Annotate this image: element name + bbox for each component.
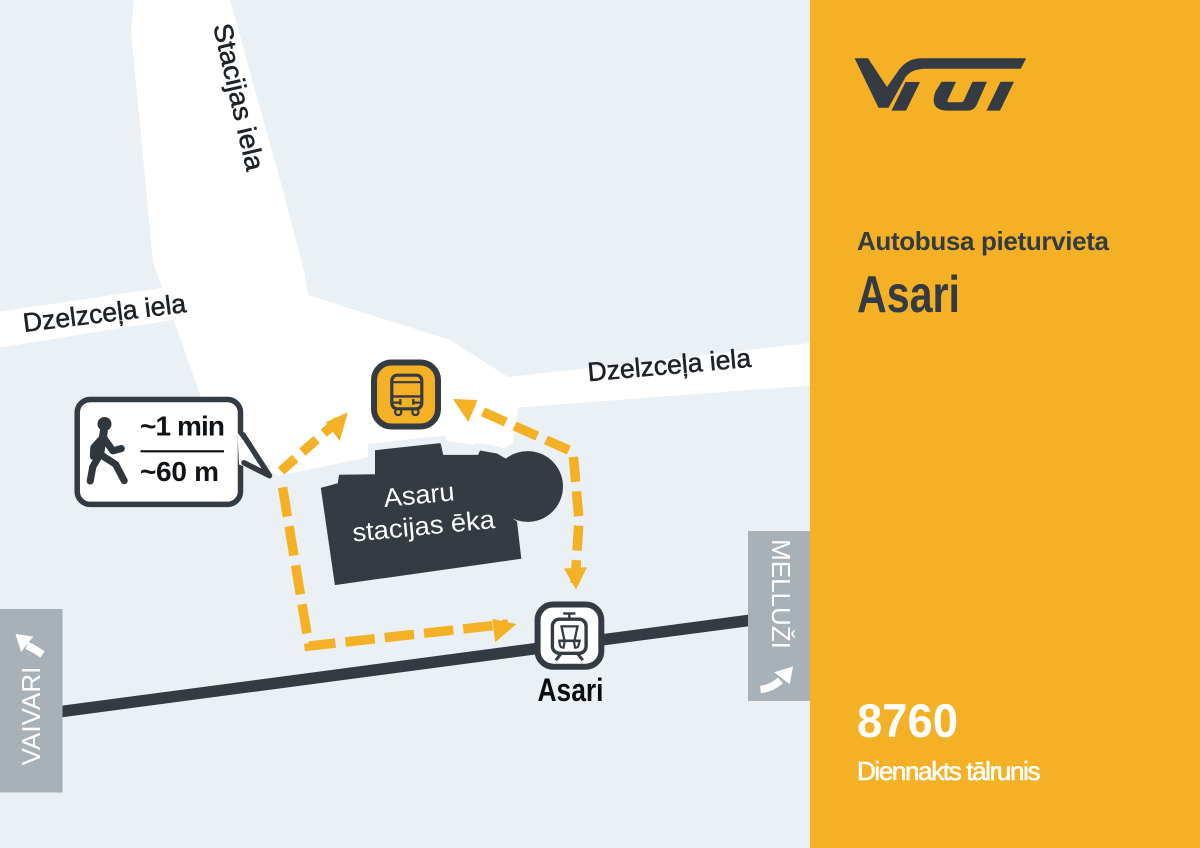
- svg-text:VAIVARI: VAIVARI: [16, 667, 46, 766]
- svg-text:~60 m: ~60 m: [140, 456, 219, 487]
- svg-text:MELLUŽI: MELLUŽI: [766, 539, 796, 649]
- svg-text:~1 min: ~1 min: [140, 411, 225, 442]
- svg-text:Diennakts tālrunis: Diennakts tālrunis: [857, 756, 1041, 786]
- svg-text:8760: 8760: [857, 694, 958, 747]
- svg-text:Autobusa pieturvieta: Autobusa pieturvieta: [857, 226, 1110, 256]
- svg-text:Asari: Asari: [538, 672, 604, 708]
- svg-text:Asari: Asari: [857, 266, 960, 324]
